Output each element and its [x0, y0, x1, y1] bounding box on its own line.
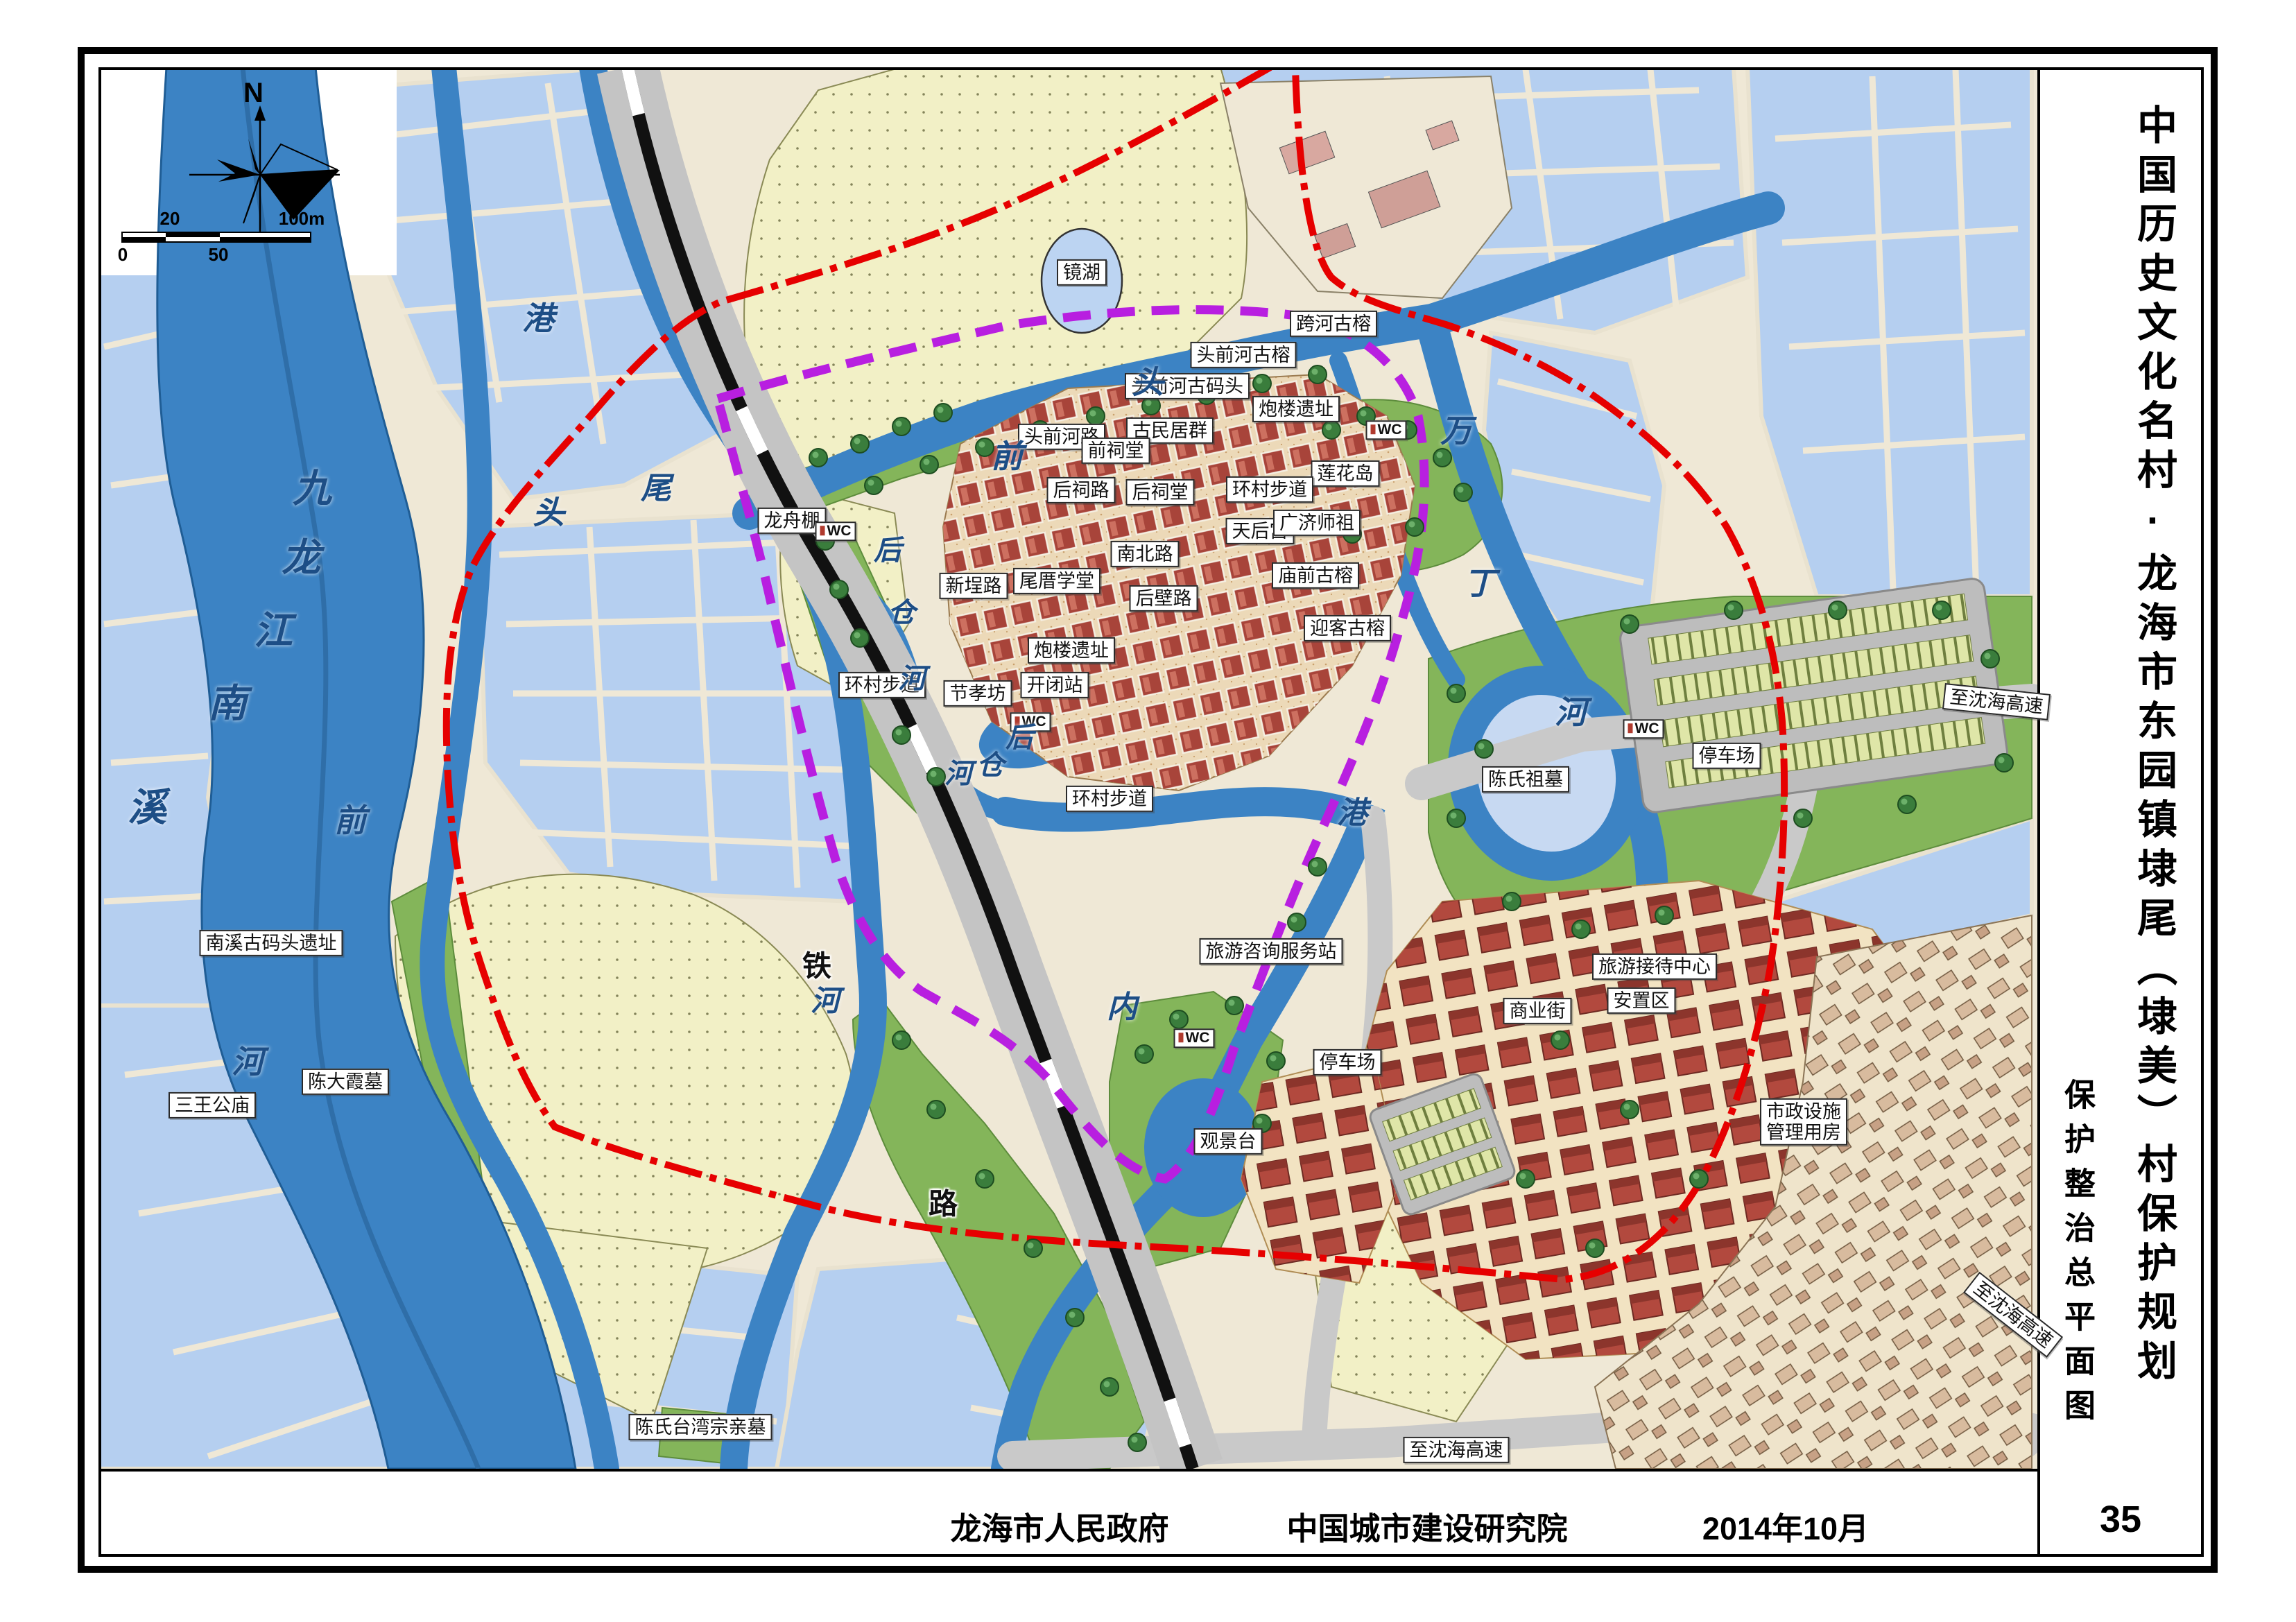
footer-divider — [98, 1469, 2040, 1472]
river-name-char-9: 河 — [232, 1037, 264, 1082]
label-chenshi-taiwan-zongqinmu: 陈氏台湾宗亲墓 — [629, 1414, 772, 1440]
label-chendaxia-mu: 陈大霞墓 — [302, 1069, 389, 1095]
compass-north-label: N — [243, 78, 264, 109]
scale-tick-100: 100m — [279, 208, 325, 230]
river-name-char-3: 九 — [293, 458, 331, 514]
river-name-char-5: 江 — [254, 600, 293, 656]
label-jinghu: 镜湖 — [1057, 259, 1107, 286]
label-nanbeilu: 南北路 — [1111, 541, 1180, 567]
railway-name-char-0: 铁 — [802, 943, 831, 985]
river-name-char-20: 河 — [1555, 687, 1587, 733]
label-tingchechang-1: 停车场 — [1693, 743, 1761, 769]
label-tingchechang-2: 停车场 — [1313, 1049, 1382, 1076]
river-name-char-18: 万 — [1440, 406, 1472, 451]
label-houcitang: 后祠堂 — [1126, 479, 1195, 506]
label-sanwang-gongmiao: 三王公庙 — [169, 1092, 256, 1119]
label-chenshi-zumu: 陈氏祖墓 — [1482, 766, 1569, 793]
scale-tick-20: 20 — [160, 208, 180, 230]
river-name-char-21: 港 — [1337, 788, 1367, 832]
river-name-char-4: 龙 — [282, 527, 320, 583]
river-name-char-8: 前 — [334, 795, 366, 841]
label-wc-mid: WC — [1174, 1028, 1215, 1048]
footer-institute: 中国城市建设研究院 — [1286, 1503, 1567, 1548]
label-qiancitang: 前祠堂 — [1082, 438, 1150, 464]
sheet-main-title: 中国历史文化名村·龙海市东园镇埭尾（埭美）村保护规划 — [2108, 104, 2198, 1477]
label-shangyejie: 商业街 — [1503, 998, 1572, 1024]
river-name-char-19: 丁 — [1464, 558, 1496, 604]
river-name-char-15: 后 — [1005, 715, 1033, 755]
label-paolou-yizhi-1: 炮楼遗址 — [1252, 396, 1340, 422]
scale-bar-strip — [121, 232, 311, 243]
label-anzhiqu: 安置区 — [1607, 987, 1676, 1014]
label-guanjingtai: 观景台 — [1194, 1128, 1263, 1155]
river-name-char-12: 后 — [874, 528, 901, 568]
label-weicuo-xuetang: 尾厝学堂 — [1013, 568, 1100, 594]
label-lvyou-zixun-fuwuzhan: 旅游咨询服务站 — [1200, 938, 1343, 965]
river-name-char-22: 内 — [1107, 982, 1137, 1026]
river-name-char-0: 港 — [522, 293, 554, 339]
river-name-char-13: 仓 — [888, 590, 915, 630]
label-houbilu: 后壁路 — [1130, 585, 1198, 612]
label-houcilu: 后祠路 — [1047, 477, 1116, 503]
label-xinchenglu: 新埕路 — [940, 573, 1008, 599]
river-name-char-10: 头 — [1132, 357, 1164, 403]
railway-name-char-1: 路 — [929, 1181, 958, 1223]
label-miaoqian-gurong: 庙前古榕 — [1272, 562, 1359, 589]
river-name-char-17: 河 — [944, 751, 972, 791]
label-yingke-gurong: 迎客古榕 — [1304, 615, 1391, 641]
label-kuahe-gurong: 跨河古榕 — [1290, 311, 1377, 337]
page-number: 35 — [2100, 1498, 2141, 1541]
label-paolou-yizhi-2: 炮楼遗址 — [1028, 637, 1115, 664]
river-name-char-11: 前 — [991, 431, 1023, 477]
label-touqianhe-gurong: 头前河古榕 — [1191, 342, 1297, 368]
label-nanxi-gumatou-yizhi: 南溪古码头遗址 — [200, 930, 343, 956]
label-lianhuadao: 莲花岛 — [1311, 460, 1380, 487]
label-lvyou-jiedai-zhongxin: 旅游接待中心 — [1592, 954, 1717, 980]
river-name-char-6: 南 — [208, 673, 247, 729]
label-shizheng-sheshi: 市政设施 管理用房 — [1760, 1098, 1847, 1146]
label-wc-parking: WC — [1623, 719, 1664, 739]
river-name-char-1: 头 — [533, 488, 564, 533]
label-wc-lianhuadao: WC — [1366, 420, 1407, 440]
label-jiexiaofang: 节孝坊 — [944, 680, 1012, 707]
sheet-sub-title: 保护整治总平面图 — [2049, 1078, 2105, 1481]
river-name-char-16: 仓 — [976, 743, 1004, 783]
label-huancun-budao-1: 环村步道 — [1226, 476, 1313, 503]
label-zhi-shenhai-gaosu-3: 至沈海高速 — [1404, 1437, 1510, 1463]
label-huancun-budao-3: 环村步道 — [1066, 786, 1153, 812]
label-guangji-shizu: 广济师祖 — [1273, 510, 1361, 536]
scale-tick-50: 50 — [209, 244, 229, 266]
footer-government: 龙海市人民政府 — [950, 1503, 1168, 1548]
river-name-char-7: 溪 — [128, 777, 166, 833]
footer-date: 2014年10月 — [1702, 1503, 1869, 1548]
scale-tick-0: 0 — [118, 244, 128, 266]
label-kaibizhan: 开闭站 — [1021, 672, 1089, 698]
river-name-char-2: 尾 — [641, 463, 671, 508]
scale-bar: 20 100m 0 50 — [114, 208, 329, 264]
river-name-char-14: 河 — [898, 656, 926, 696]
label-wc-longzhoupeng: WC — [815, 521, 856, 541]
